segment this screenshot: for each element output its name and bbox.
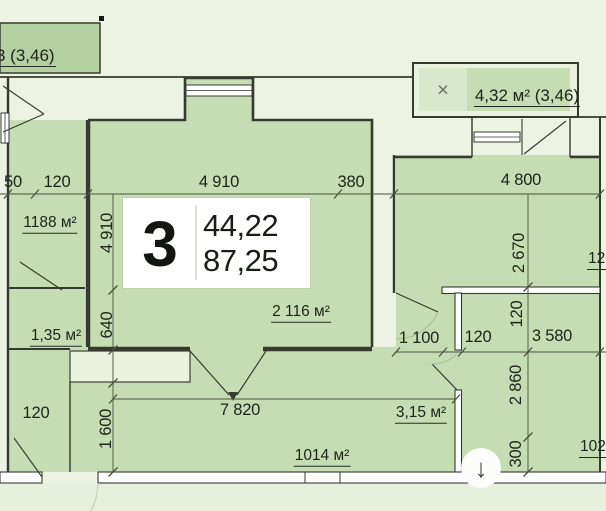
area-label-neighbor-balcony: 3 (3,46) (0, 47, 56, 67)
dimension-label: 120 (44, 174, 71, 191)
kitchen-bottom-wall (442, 287, 600, 294)
dimension-label: 1 100 (399, 330, 439, 347)
dimension-label: 4 910 (199, 174, 239, 191)
dimension-label: 2 860 (508, 365, 525, 405)
unit-values: 44,22 87,25 (197, 208, 310, 278)
area-label-balcony: 4,32 м² (3,46) (474, 87, 580, 107)
bottom-wall-right (98, 472, 606, 483)
corner-marker-dot (99, 16, 104, 21)
stairs-circle: ↓ (461, 448, 501, 488)
dimension-label: 120 (23, 405, 50, 422)
dimension-label: 380 (338, 174, 365, 191)
dimension-label: 4 800 (501, 172, 541, 189)
dimension-label: 120 (465, 329, 492, 346)
floorplan: 50 120 4 910 380 4 800 4 910 640 1 600 2… (0, 0, 606, 511)
unit-info-card: 3 44,22 87,25 (123, 198, 310, 288)
dimension-label: 120 (509, 301, 526, 328)
area-label-wc: 1,35 м² (30, 328, 82, 347)
unit-area-top-value: 44,22 (203, 208, 310, 243)
dimension-label: 4 910 (99, 213, 116, 253)
bath-wall-lower (455, 390, 462, 472)
dimension-label: 50 (4, 174, 22, 191)
area-label-left-room: 1188 м² (22, 215, 77, 234)
bath-wall-upper (455, 293, 462, 350)
dimension-label-total-width: 7 820 (220, 402, 260, 419)
right-rooms-fill (396, 155, 600, 472)
bottom-wall-left (0, 472, 42, 483)
dimension-label: 2 670 (511, 233, 528, 273)
balcony-x-icon: × (437, 80, 449, 103)
stairs-down-icon: ↓ (475, 453, 488, 484)
dimension-label: 3 580 (532, 328, 572, 345)
unit-number: 3 (123, 210, 195, 276)
area-label-bathroom: 3,15 м² (395, 405, 447, 424)
unit-area-bottom-value: 87,25 (203, 243, 310, 278)
dimension-label: 640 (99, 312, 116, 339)
area-label-main-room: 2 116 м² (271, 304, 331, 323)
dimension-label: 1 600 (98, 409, 115, 449)
area-label-cut-right-top: 12 (587, 251, 606, 270)
dimension-label: 300 (508, 441, 525, 468)
area-label-cut-right-bottom: 102 (579, 439, 606, 458)
niche-fill (70, 351, 190, 382)
area-label-hall: 1014 м² (294, 448, 351, 467)
outside-strip (0, 483, 606, 511)
